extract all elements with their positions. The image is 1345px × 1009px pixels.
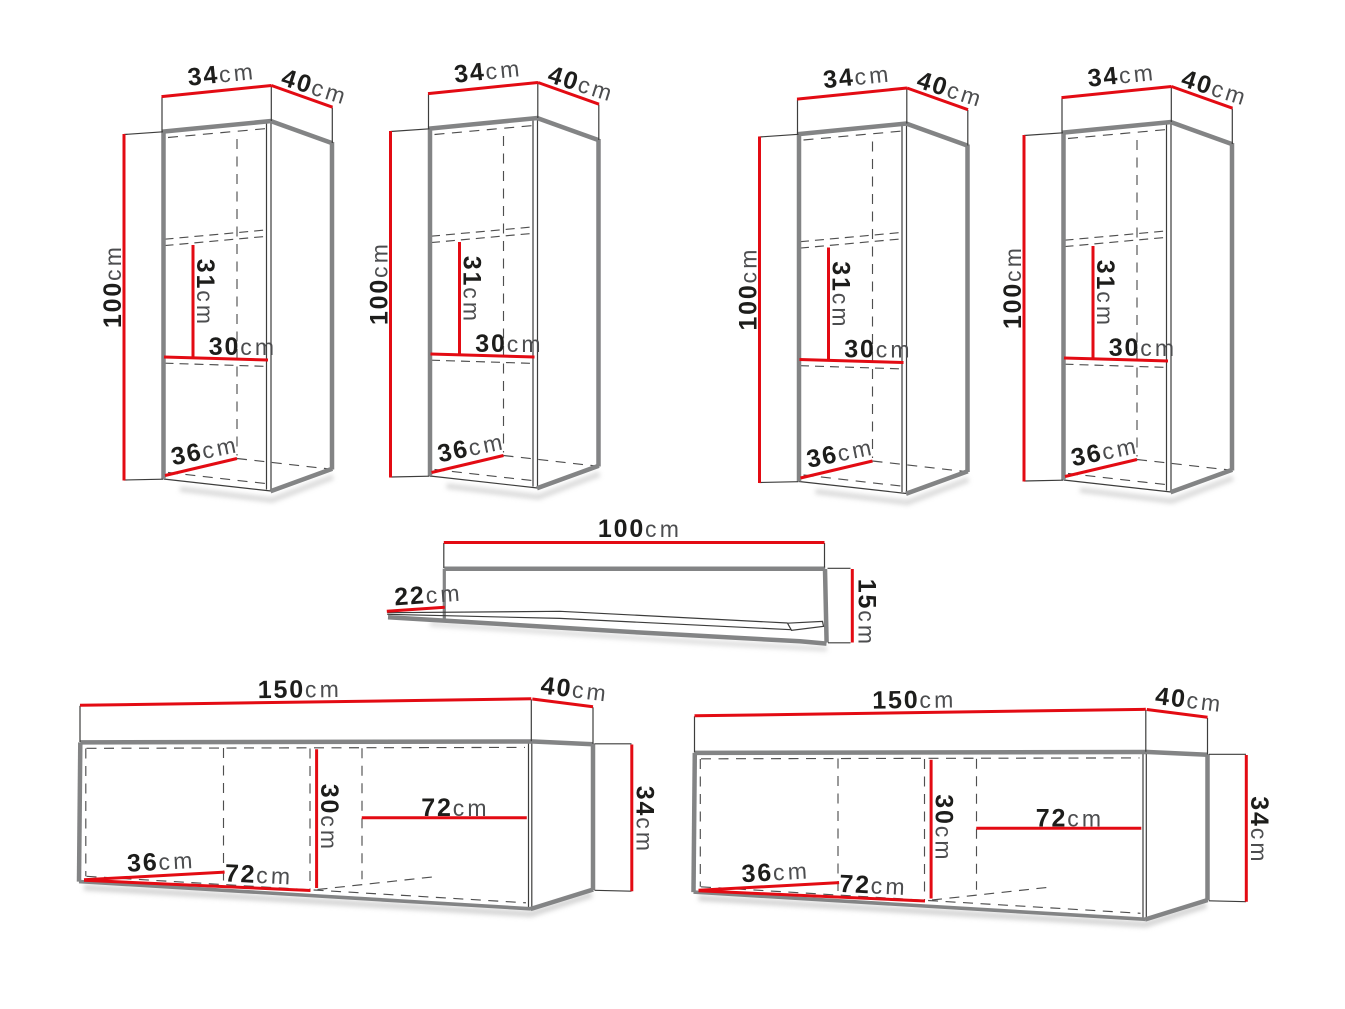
svg-text:31cm: 31cm — [191, 259, 219, 327]
svg-text:36cm: 36cm — [126, 846, 196, 878]
svg-text:36cm: 36cm — [741, 856, 811, 888]
svg-text:34cm: 34cm — [1245, 796, 1273, 864]
svg-text:30cm: 30cm — [475, 330, 543, 358]
svg-text:100cm: 100cm — [598, 515, 682, 543]
svg-text:30cm: 30cm — [209, 333, 277, 361]
svg-text:30cm: 30cm — [930, 794, 958, 862]
svg-text:31cm: 31cm — [827, 261, 855, 329]
svg-text:150cm: 150cm — [872, 685, 957, 714]
svg-text:31cm: 31cm — [458, 256, 486, 324]
svg-text:72cm: 72cm — [1036, 805, 1104, 833]
svg-text:72cm: 72cm — [421, 794, 489, 822]
svg-text:100cm: 100cm — [999, 245, 1027, 329]
svg-text:15cm: 15cm — [853, 579, 881, 647]
svg-text:31cm: 31cm — [1091, 260, 1119, 328]
svg-text:30cm: 30cm — [315, 784, 343, 852]
svg-text:34cm: 34cm — [631, 786, 659, 854]
svg-text:100cm: 100cm — [366, 241, 394, 325]
svg-text:30cm: 30cm — [1109, 334, 1177, 362]
svg-text:100cm: 100cm — [735, 246, 763, 330]
svg-text:100cm: 100cm — [99, 244, 127, 328]
svg-text:150cm: 150cm — [258, 675, 343, 704]
svg-text:72cm: 72cm — [839, 870, 909, 901]
svg-text:30cm: 30cm — [844, 336, 912, 364]
svg-text:72cm: 72cm — [224, 859, 294, 890]
